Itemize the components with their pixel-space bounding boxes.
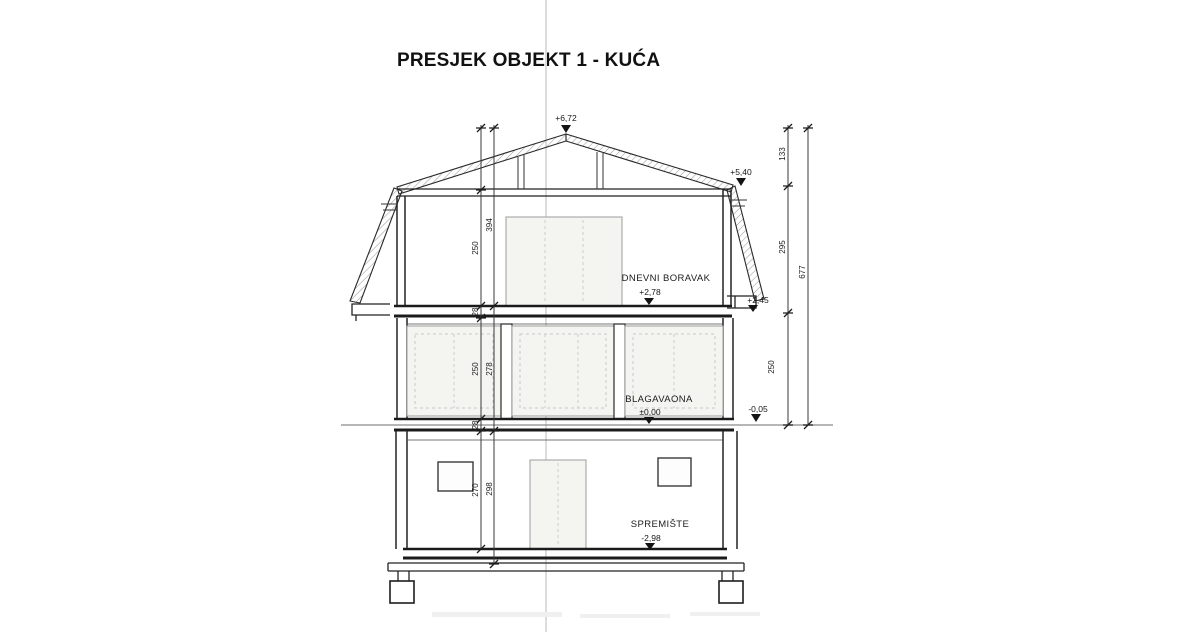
dim-ground-floor-to-floor: 278 [485,362,494,376]
dim-terrace-to-ground: 250 [767,360,776,374]
basement-window-left [438,462,473,491]
room-label-spremiste: SPREMIŠTE [631,519,690,530]
dim-basement-clear-height: 270 [471,483,480,497]
dim-total-height: 677 [798,265,807,279]
ground-right-wall [723,318,733,419]
dim-slab-2: 28 [471,420,480,429]
footing-pad-right [719,581,743,603]
attic-left-wall [397,196,405,306]
room-elevation-dnevni-boravak: +2,78 [639,287,661,297]
knee-wall-brackets [381,200,747,210]
dim-slab-1: 28 [471,307,480,316]
room-elevation-spremiste: -2,98 [641,533,661,543]
scan-smudge [432,612,562,617]
footing-stubs [398,571,733,581]
room-elevation-blagavaona: ±0,00 [639,407,660,417]
dim-ground-clear-height: 250 [471,362,480,376]
footing-pad-left [390,581,414,603]
attic-right-wall [723,190,731,306]
attic-storey [381,190,747,316]
dim-ridge-to-eave: 133 [778,147,787,161]
wall-pier-2 [614,324,625,419]
room-label-dnevni-boravak: DNEVNI BORAVAK [622,273,711,284]
wall-pier-1 [501,324,512,419]
basement-window-right [658,458,691,486]
dim-attic-to-ridge: 394 [485,218,494,232]
dim-eave-to-terrace: 295 [778,240,787,254]
roof-slope-lower-right [727,186,764,301]
drawing-sheet: PRESJEK OBJEKT 1 - KUĆA [0,0,1200,632]
blagavaona-arrow-icon [644,417,654,424]
king-posts [518,152,603,189]
scan-smudge [690,612,760,616]
terrace-elevation-label: +2,45 [747,295,769,305]
eave-elevation-label: +5,40 [730,167,752,177]
roof-slope-lower-left [350,188,402,303]
basement-storey [388,431,744,603]
ground-left-wall [397,318,407,419]
ridge-elevation-label: +6,72 [555,113,577,123]
left-eave-gutter [352,304,390,321]
section-drawing: 250 28 250 28 270 394 278 298 133 295 25… [0,0,1200,632]
eave-elevation-arrow-icon [736,178,746,186]
dnevni-boravak-arrow-icon [644,298,654,305]
ridge-elevation-arrow-icon [561,125,571,133]
ground-elevation-label: -0,05 [748,404,768,414]
basement-left-wall [396,431,407,549]
scan-artifacts [432,612,760,618]
attic-door-opening [506,217,622,306]
ground-storey [394,318,734,430]
basement-right-wall [723,431,737,549]
dim-attic-clear-height: 250 [471,241,480,255]
roof-slope-upper-right [566,134,733,192]
foundation-strip [388,563,744,571]
scan-smudge [580,614,670,618]
ground-door-2 [512,326,614,416]
ground-elevation-arrow-icon [751,414,761,422]
collar-beam [397,189,731,196]
room-label-blagavaona: BLAGAVAONA [625,394,693,405]
dim-basement-floor-to-floor: 298 [485,482,494,496]
